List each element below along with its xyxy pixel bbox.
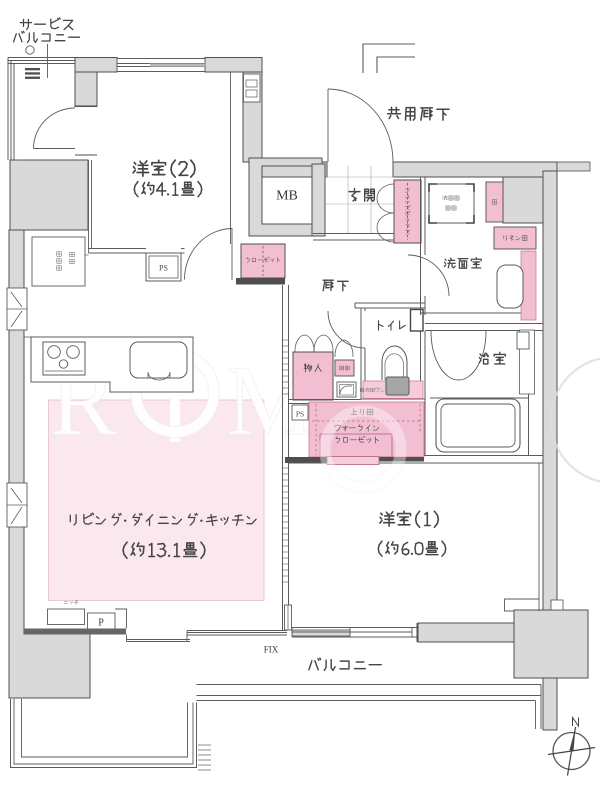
svg-text:P: P	[98, 618, 104, 629]
svg-text:PS: PS	[296, 410, 304, 419]
svg-text:PS: PS	[159, 264, 168, 273]
svg-text:MB: MB	[276, 189, 298, 204]
svg-text:FIX: FIX	[264, 645, 279, 655]
